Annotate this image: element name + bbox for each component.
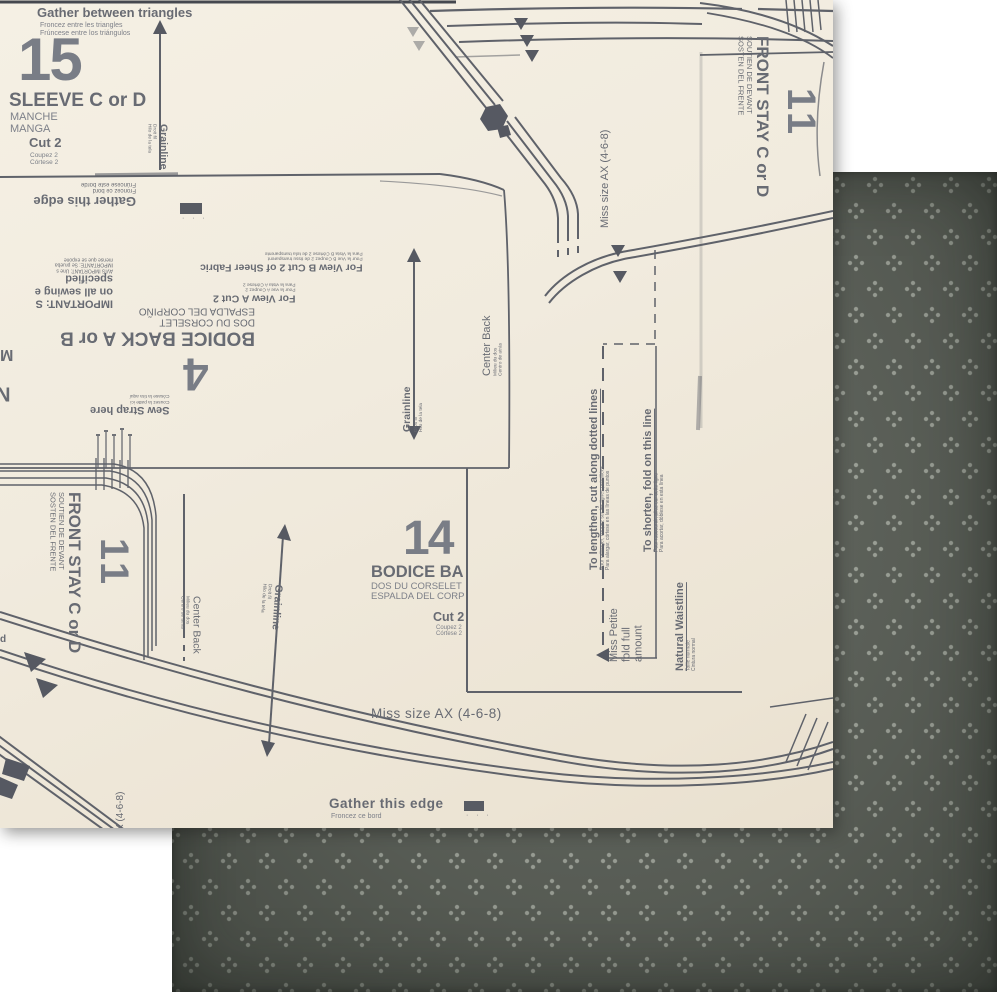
center-back-es: Centro de atrás [179, 596, 184, 666]
bodice14-cut2-es: Córtese 2 [436, 631, 462, 638]
bodice-back-title: BODICE BACK A or B [60, 327, 255, 348]
bodice-center-back-label: Center Back Milieu du dos Centro de atrá… [481, 296, 504, 376]
shorten-es: Para acortar, dóblese en esta línea [660, 392, 666, 552]
partial-letter-m: M [0, 345, 13, 363]
partial-letter-d: d [0, 634, 6, 645]
label-box-dots: · · · [466, 812, 492, 819]
front-stay-es: SOSTEN DEL FRENTE [48, 492, 56, 677]
piece-number-11-top: 11 [777, 83, 823, 143]
shorten-text: To shorten, fold on this line [642, 392, 654, 552]
miss-size-vertical: Miss size AX (4-6-8) [599, 128, 611, 228]
product-photo: Gather between triangles Froncez entre l… [0, 0, 1000, 1000]
natural-waistline-es: Cintura normal [692, 563, 698, 671]
sleeve-cut2: Cut 2 [29, 136, 62, 151]
piece-number-15: 15 [18, 26, 81, 93]
front-stay-top-block: FRONT STAY C or D SOUTIEN DE DEVANT SOST… [736, 36, 772, 221]
bodice14-title: BODICE BA [371, 563, 464, 581]
important-line3: specified [0, 273, 113, 285]
grainline-fr: Droit fil [151, 124, 156, 178]
front-stay-fr: SOUTIEN DE DEVANT [56, 492, 64, 677]
bodice14-cut2: Cut 2 [433, 610, 464, 624]
label-box [464, 801, 484, 811]
sleeve-grainline-label: Grainline Droit fil Hilo de la tela [146, 124, 168, 178]
partial-letter-n: N [0, 382, 10, 404]
front-sheet-pattern: Gather between triangles Froncez entre l… [0, 0, 833, 828]
grainline-text: Grainline [402, 322, 414, 432]
view-a-block: For View A Cut 2 Pour la vue A Coupez 2 … [213, 281, 295, 303]
front-stay-bottom-block: FRONT STAY C or D SOUTIEN DE DEVANT SOST… [48, 492, 84, 677]
front-stay-es: SOSTEN DEL FRENTE [736, 36, 744, 221]
center-back-fr: Milieu du dos [184, 596, 189, 666]
sew-strap-block: Sew Strap here Cousez la patte ici Cósas… [90, 393, 169, 416]
gather-between-label: Gather between triangles [37, 6, 192, 21]
petite-line2: fold full [620, 592, 632, 662]
important-notice-block: IMPORTANT: S on all sewing e specified A… [0, 256, 113, 310]
important-small1: AVIS IMPORTANT: Une s [0, 267, 113, 273]
sew-strap-text: Sew Strap here [90, 404, 169, 416]
view-b-es: Para la Vista B Córtese 2 de tela transp… [200, 250, 363, 255]
view-a-main: For View A Cut 2 [213, 292, 295, 304]
gather-edge-fr: Froncez ce bord [44, 187, 136, 194]
front-stay-fr: SOUTIEN DE DEVANT [744, 36, 752, 221]
gather-edge-text: Gather this edge [44, 193, 136, 208]
gather-edge-top-label: Gather this edge Froncez ce bord Frúnces… [44, 180, 136, 208]
bodice-back-fr: DOS DU CORSELET [60, 316, 255, 327]
important-line1: IMPORTANT: S [0, 297, 113, 309]
sleeve-cut2-es: Córtese 2 [30, 159, 58, 166]
piece-number-4: 4 [185, 348, 209, 400]
grainline-es: Hilo de la tela [146, 124, 151, 178]
natural-waistline-block: Natural Waistline Taille normale Cintura… [674, 563, 698, 671]
lengthen-block: To lengthen, cut along dotted lines Pour… [588, 375, 612, 570]
important-line2: on all sewing e [0, 285, 113, 297]
shorten-block: To shorten, fold on this line Pour racco… [642, 392, 666, 552]
sleeve-grainline-arrowhead [153, 20, 167, 34]
bodice-grainline-label: Grainline Droit fil Hilo de la tela [402, 322, 424, 432]
lengthen-text: To lengthen, cut along dotted lines [588, 375, 600, 570]
miss-size-horizontal: Miss size AX (4-6-8) [371, 706, 502, 721]
front-stay-title: FRONT STAY C or D [753, 36, 772, 221]
lengthen-es: Para alargar, córtese en las líneas de p… [606, 375, 612, 570]
front-stay-title: FRONT STAY C or D [65, 492, 84, 677]
piece-number-14: 14 [403, 512, 452, 566]
gather-edge-bottom-fr: Froncez ce bord [331, 813, 382, 821]
sleeve-title: SLEEVE C or D [9, 90, 146, 111]
bodice-back-title-block: BODICE BACK A or B DOS DU CORSELET ESPAL… [60, 305, 255, 349]
view-a-es: Para la vista A Córtese 2 [213, 281, 295, 286]
petite-line1: Miss Petite [608, 592, 620, 662]
natural-waistline-text: Natural Waistline [674, 563, 686, 671]
center-back-es: Centro de atrás [499, 296, 504, 376]
label-box [180, 203, 202, 214]
sleeve-title-es: MANGA [10, 123, 50, 135]
center-back-text: Center Back [190, 596, 202, 666]
petite-line3: amount [633, 592, 645, 662]
sleeve-title-fr: MANCHE [10, 111, 58, 123]
label-box-dots: · · · [182, 215, 208, 222]
center-back-text: Center Back [481, 296, 493, 376]
miss-size-partial: X (4-6-8) [115, 776, 126, 828]
sew-strap-fr: Cousez la patte ici [90, 398, 169, 403]
bodice14-es: ESPALDA DEL CORP [371, 592, 464, 603]
piece-number-11-bottom: 11 [90, 533, 136, 593]
grainline-text: Grainline [157, 124, 169, 178]
grainline-es: Hilo de la tela [419, 322, 424, 432]
sew-strap-es: Cósase la tira aquí [90, 393, 169, 398]
view-b-block: For View B Cut 2 of Sheer Fabric Pour la… [200, 250, 363, 272]
miss-petite-block: Miss Petite fold full amount [608, 592, 645, 662]
view-b-main: For View B Cut 2 of Sheer Fabric [200, 261, 363, 273]
bottom-center-back-label: Center Back Milieu du dos Centro de atrá… [179, 596, 201, 666]
gather-edge-es: Frúncese este borde [44, 180, 136, 187]
gather-edge-bottom-label: Gather this edge [329, 796, 444, 811]
